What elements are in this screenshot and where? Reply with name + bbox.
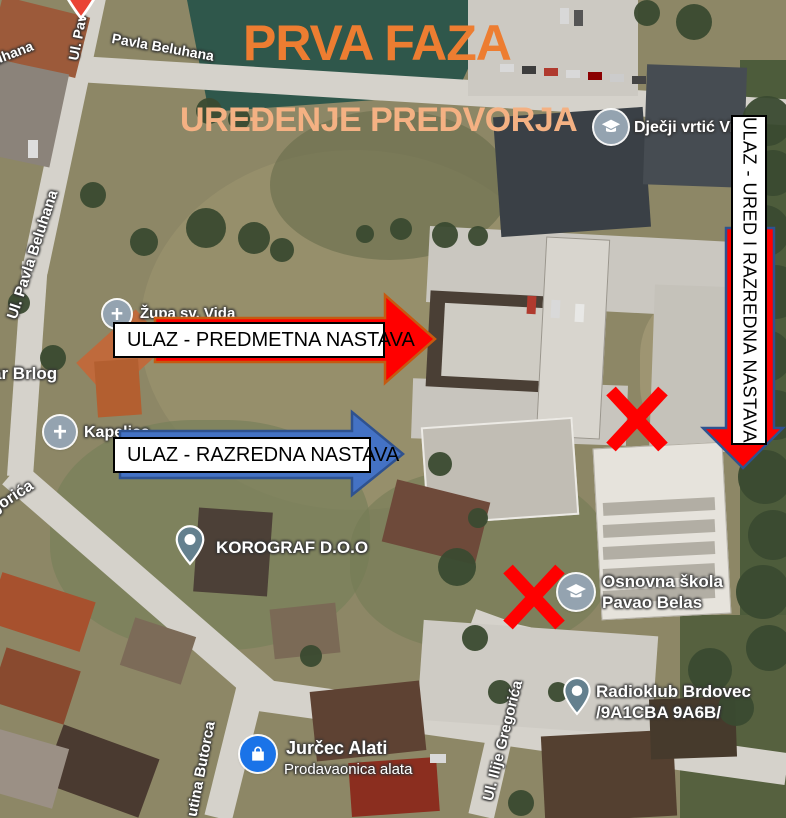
annotated-satellite-map: Pavla Beluhana Ul. Pav uhana Ul. Pavla B…	[0, 0, 786, 818]
entrance-label-predmetna-nastava: ULAZ - PREDMETNA NASTAVA	[113, 322, 385, 358]
entrance-label-ured-i-razredna-nastava: ULAZ - URED I RAZREDNA NASTAVA	[731, 115, 767, 445]
page-title: PRVA FAZA	[243, 14, 511, 72]
crossed-out-entrance-x-lower	[508, 569, 560, 625]
crossed-out-entrance-x-upper	[611, 391, 663, 447]
entrance-label-razredna-nastava: ULAZ - RAZREDNA NASTAVA	[113, 437, 371, 473]
page-subtitle: UREĐENJE PREDVORJA	[180, 101, 577, 140]
